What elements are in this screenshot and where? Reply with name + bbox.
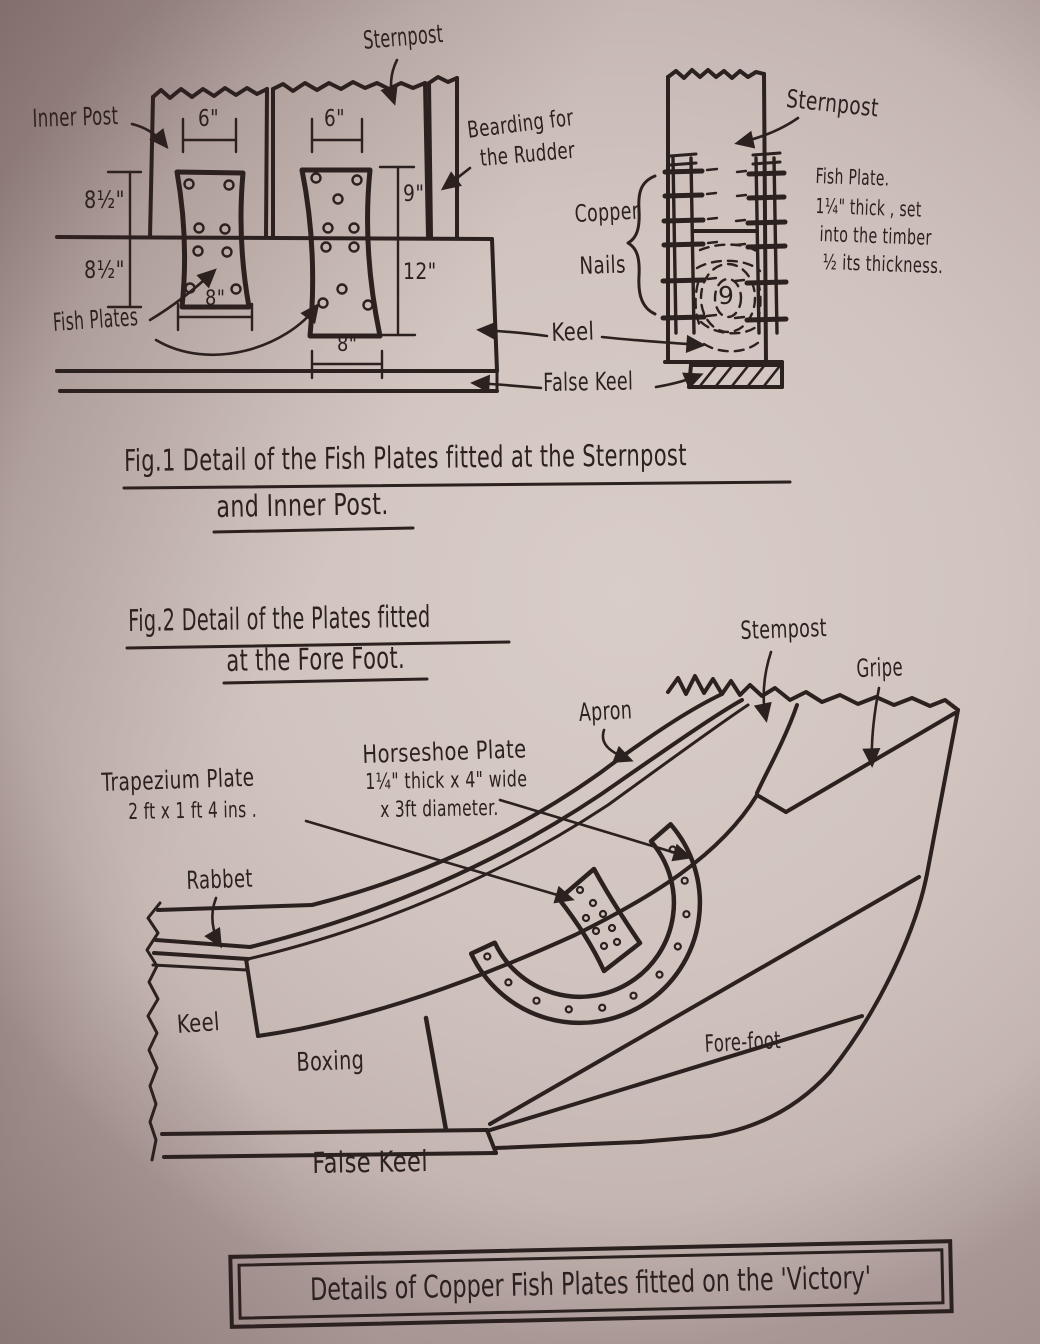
- fig2-gripe-label: Gripe: [856, 652, 903, 683]
- fig2-caption-line1: Fig.2 Detail of the Plates fitted: [128, 600, 431, 639]
- dim-left-lower: 8½": [84, 256, 125, 284]
- fig2-forefoot-label: Fore-foot: [704, 1026, 782, 1058]
- fig1-fish-plates-label: Fish Plates: [52, 302, 139, 337]
- fig2-horseshoe-label-line1: Horseshoe Plate: [362, 734, 527, 769]
- fig2-boxing-label: Boxing: [296, 1046, 365, 1078]
- fig1-caption-line1: Fig.1 Detail of the Fish Plates fitted a…: [124, 438, 687, 479]
- fig2-caption-line2: at the Fore Foot.: [226, 641, 405, 679]
- fig1-keel-label: Keel: [551, 317, 595, 347]
- dim-plate1-bottom: 8": [205, 286, 225, 310]
- fig2-horseshoe-label-line2: 1¼" thick x 4" wide: [365, 767, 528, 795]
- fig1-plate-note-line2: 1¼" thick , set: [815, 194, 922, 222]
- fig1-false-keel-label: False Keel: [543, 366, 633, 397]
- fig2-rabbet-label: Rabbet: [186, 864, 253, 895]
- photo-page: Inner Post Sternpost Bearding for the Ru…: [0, 0, 1040, 1344]
- title-box: Details of Copper Fish Plates fitted on …: [228, 1239, 953, 1329]
- horseshoe-plate-shape: [471, 824, 700, 1023]
- fig1-caption-line2: and Inner Post.: [216, 487, 389, 525]
- fig2-drawing: [147, 652, 958, 1160]
- fig2-apron-label: Apron: [578, 695, 633, 727]
- page-title: Details of Copper Fish Plates fitted on …: [310, 1260, 872, 1308]
- dim-right-upper: 9": [403, 182, 424, 207]
- fig1-inner-post-label: Inner Post: [32, 101, 119, 133]
- fig2-stempost-label: Stempost: [740, 613, 827, 645]
- fig2-keel-label: Keel: [176, 1007, 221, 1039]
- fig2-horseshoe-label-line3: x 3ft diameter.: [380, 796, 499, 823]
- fig1-copper-label: Copper: [574, 197, 640, 228]
- title-box-inner-border: Details of Copper Fish Plates fitted on …: [237, 1248, 944, 1319]
- fig2-false-keel-label: False Keel: [312, 1144, 428, 1180]
- fig1-right-drawing: [628, 70, 798, 387]
- dim-plate2-top: 6": [324, 106, 345, 132]
- dim-right-lower: 12": [403, 260, 437, 285]
- dim-plate1-top: 6": [198, 106, 219, 132]
- fig1-nails-label: Nails: [579, 250, 626, 280]
- fig1-plate-note-line3: into the timber: [819, 222, 932, 250]
- dim-plate2-bottom: 8": [337, 332, 357, 356]
- dim-left-upper: 8½": [84, 186, 125, 214]
- fig2-trapezium-label-line2: 2 ft x 1 ft 4 ins .: [128, 798, 257, 825]
- trapezium-plate-shape: [559, 869, 640, 971]
- fig1-knot-digit: 9: [718, 281, 734, 310]
- fig2-trapezium-label-line1: Trapezium Plate: [101, 763, 255, 797]
- fig2-callout-arrows: [212, 652, 879, 945]
- fish-plate-strap-left: [663, 154, 717, 333]
- fig1-plate-note-line4: ½ its thickness.: [822, 250, 944, 278]
- fig1-plate-note-line1: Fish Plate.: [815, 164, 890, 191]
